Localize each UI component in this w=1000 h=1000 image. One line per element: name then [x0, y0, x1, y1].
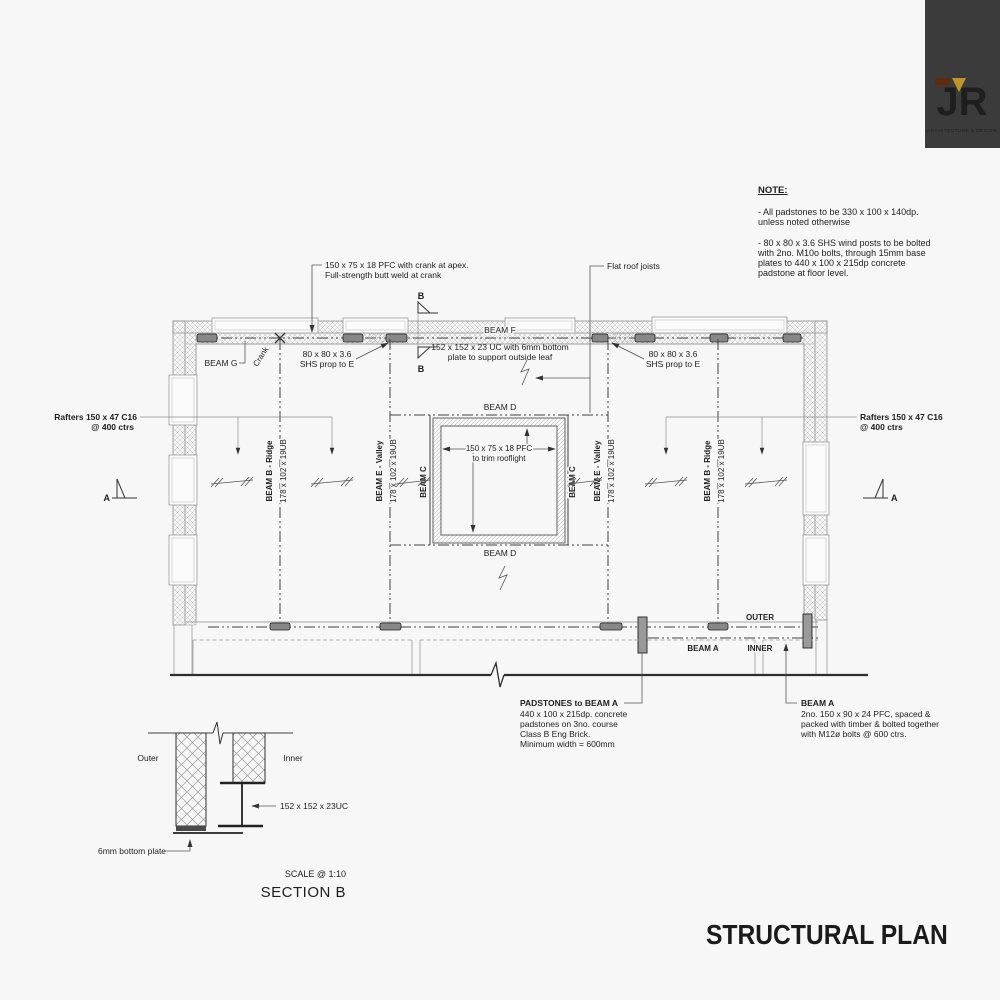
- shs-prop-label: SHS prop to E: [646, 359, 701, 369]
- annotation-text: Full-strength butt weld at crank: [325, 270, 442, 280]
- break-symbol: [491, 663, 504, 687]
- break-symbol: [213, 722, 223, 744]
- rafters-label: Rafters 150 x 47 C16: [54, 412, 137, 422]
- uc-size-label: 152 x 152 x 23UC: [280, 801, 348, 811]
- beam-g-label: BEAM G: [204, 358, 237, 368]
- shs-prop-label: SHS prop to E: [300, 359, 355, 369]
- beam-a-title: BEAM A: [801, 698, 834, 708]
- inner-wall-section: [233, 733, 265, 783]
- window: [652, 317, 787, 333]
- padstones-line: Class B Eng Brick.: [520, 729, 590, 739]
- section-marker-label: B: [418, 291, 425, 301]
- rafters-label: Rafters 150 x 47 C16: [860, 412, 943, 422]
- window: [169, 535, 197, 585]
- padstones-title: PADSTONES to BEAM A: [520, 698, 618, 708]
- beam-d-label: BEAM D: [484, 402, 517, 412]
- section-marker-label: A: [891, 493, 898, 503]
- inner-label: Inner: [283, 753, 303, 763]
- beam-e-valley-label: BEAM E - Valley: [375, 440, 384, 501]
- beam-f-spec: plate to support outside leaf: [448, 352, 553, 362]
- beam-size-label: 178 x 102 x 19UB: [389, 439, 398, 503]
- wind-post: [638, 617, 647, 653]
- padstones-line: padstones on 3no. course: [520, 719, 618, 729]
- window: [803, 442, 829, 515]
- crank-label: Crank: [251, 344, 271, 368]
- structural-plan-svg: 150 x 75 x 18 PFC to trim rooflight 150 …: [0, 0, 1000, 1000]
- annotation-text: 150 x 75 x 18 PFC with crank at apex.: [325, 260, 469, 270]
- joist-span-symbol: [499, 566, 507, 590]
- section-b-title: SECTION B: [261, 884, 346, 901]
- bottom-plate: [176, 826, 206, 831]
- beam-f-label: BEAM F: [484, 325, 516, 335]
- section-b-scale: SCALE @ 1:10: [285, 869, 346, 879]
- padstones-annotation: PADSTONES to BEAM A 440 x 100 x 215dp. c…: [520, 652, 642, 749]
- window: [169, 455, 197, 505]
- outer-leaf-label: OUTER: [746, 613, 774, 622]
- beam-size-label: 178 x 102 x 19UB: [279, 439, 288, 503]
- beam-a-label: BEAM A: [687, 644, 718, 653]
- beam-a-annotation: BEAM A 2no. 150 x 90 x 24 PFC, spaced & …: [786, 644, 939, 739]
- joist-span-symbol: [521, 360, 529, 385]
- bottom-edge: OUTER BEAM A INNER: [170, 613, 868, 687]
- rooflight: 150 x 75 x 18 PFC to trim rooflight: [433, 418, 565, 543]
- rooflight-label: 150 x 75 x 18 PFC: [466, 444, 532, 453]
- left-wall-windows: [169, 375, 197, 585]
- window: [803, 535, 829, 585]
- rafters-label: @ 400 ctrs: [860, 422, 903, 432]
- drawing-sheet: JR ARCHITECTURE & DESIGN NOTE: - All pad…: [0, 0, 1000, 1000]
- section-marker-label: A: [104, 493, 111, 503]
- bottom-plate-label: 6mm bottom plate: [98, 846, 166, 856]
- beam-size-label: 178 x 102 x 19UB: [717, 439, 726, 503]
- outer-wall-section: [176, 733, 206, 826]
- beam-a-line: 2no. 150 x 90 x 24 PFC, spaced &: [801, 709, 931, 719]
- window: [169, 375, 197, 425]
- padstones-line: 440 x 100 x 215dp. concrete: [520, 709, 628, 719]
- beam-c-label: BEAM C: [419, 466, 428, 498]
- beam-a-line: packed with timber & bolted together: [801, 719, 939, 729]
- shs-prop-label: 80 x 80 x 3.6: [303, 349, 352, 359]
- beam-d-label: BEAM D: [484, 548, 517, 558]
- rafters-label: @ 400 ctrs: [91, 422, 134, 432]
- sheet-title: STRUCTURAL PLAN: [706, 919, 948, 951]
- beam-size-label: 178 x 102 x 19UB: [607, 439, 616, 503]
- beam-b-ridge-label: BEAM B - Ridge: [265, 440, 274, 501]
- section-b-detail: Outer Inner 152 x 152 x 23UC 6mm bottom …: [98, 722, 348, 901]
- outer-label: Outer: [137, 753, 158, 763]
- beam-f-spec: 152 x 152 x 23 UC with 6mm bottom: [431, 342, 568, 352]
- beam-e-valley-label: BEAM E - Valley: [593, 440, 602, 501]
- rooflight-label: to trim rooflight: [473, 454, 527, 463]
- shs-prop-label: 80 x 80 x 3.6: [649, 349, 698, 359]
- beam-b-ridge-label: BEAM B - Ridge: [703, 440, 712, 501]
- section-marker-label: B: [418, 364, 425, 374]
- annotation-text: Flat roof joists: [607, 261, 660, 271]
- right-wall-windows: [803, 442, 829, 585]
- window: [343, 318, 408, 333]
- padstones-line: Minimum width = 600mm: [520, 739, 615, 749]
- beam-a-line: with M12ø bolts @ 600 ctrs.: [800, 729, 906, 739]
- window: [212, 318, 318, 333]
- inner-leaf-label: INNER: [748, 644, 773, 653]
- wind-post: [803, 614, 812, 648]
